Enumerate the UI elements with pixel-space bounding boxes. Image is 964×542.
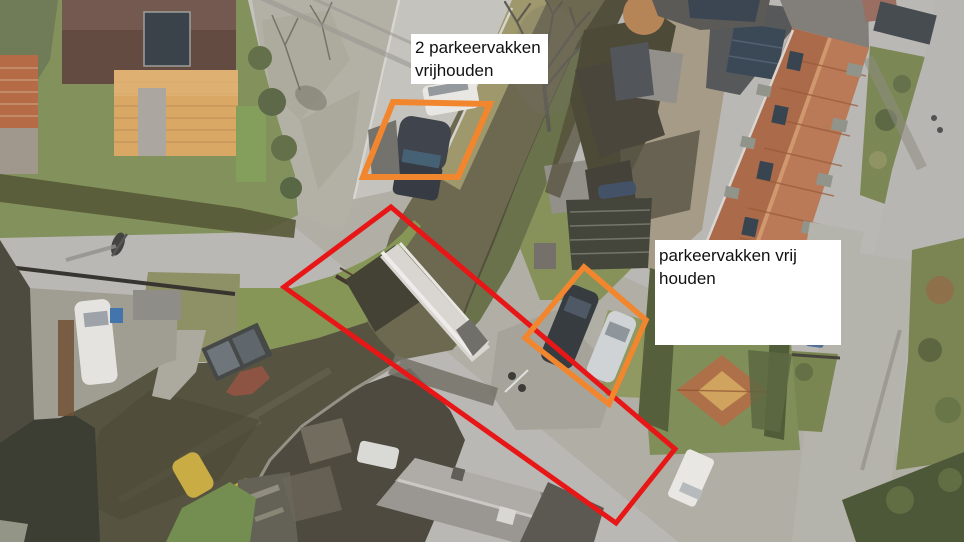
svg-text:houden: houden — [659, 269, 716, 288]
svg-text:parkeervakken vrij: parkeervakken vrij — [659, 246, 797, 265]
svg-text:vrijhouden: vrijhouden — [415, 61, 493, 80]
svg-text:2 parkeervakken: 2 parkeervakken — [415, 38, 541, 57]
